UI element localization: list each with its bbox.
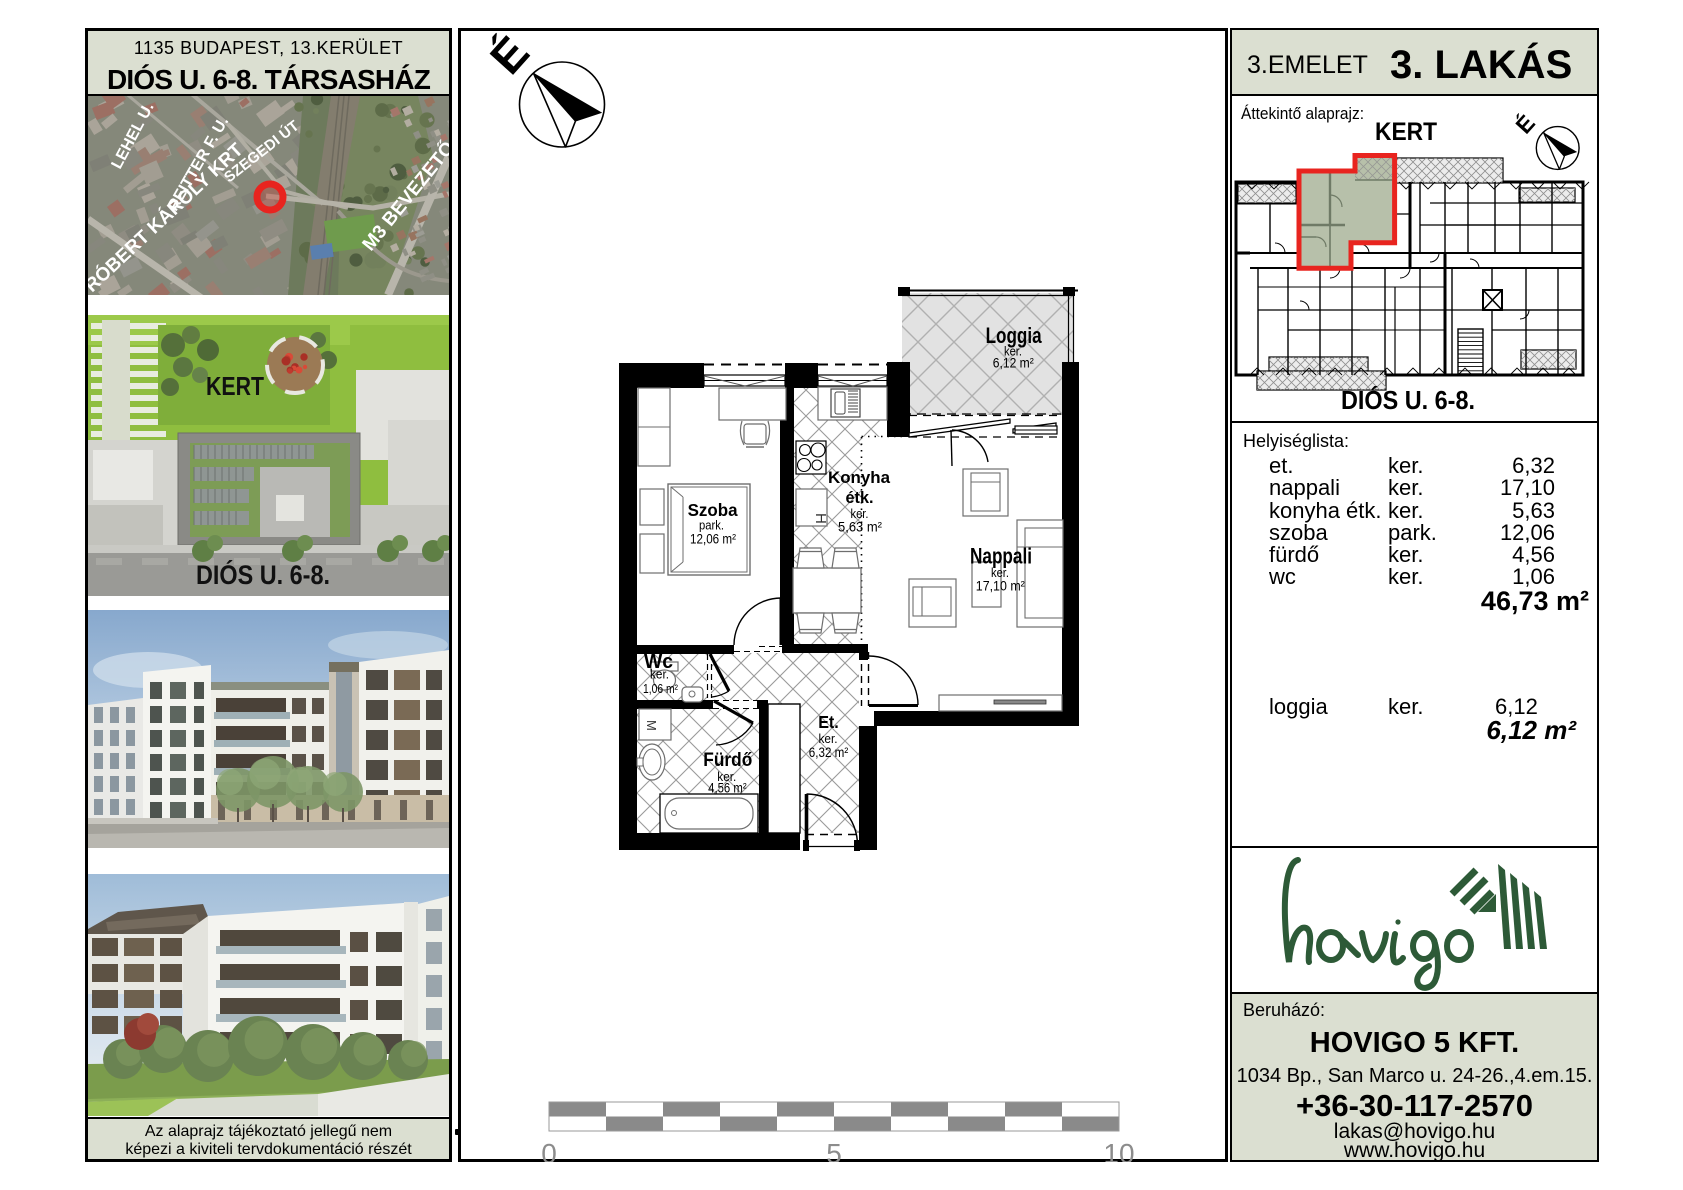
svg-text:6,12 m²: 6,12 m² xyxy=(993,356,1034,371)
svg-text:É: É xyxy=(1510,109,1540,138)
svg-text:ker.: ker. xyxy=(650,667,669,681)
svg-text:étk.: étk. xyxy=(846,488,874,507)
svg-text:Et.: Et. xyxy=(818,712,839,732)
svg-text:KERT: KERT xyxy=(206,371,264,401)
svg-text:Szoba: Szoba xyxy=(688,500,738,520)
svg-text:DIÓS U. 6-8.: DIÓS U. 6-8. xyxy=(196,559,330,590)
svg-text:6,32 m²: 6,32 m² xyxy=(809,745,849,760)
svg-text:H: H xyxy=(812,513,829,524)
svg-text:Nappali: Nappali xyxy=(970,544,1032,569)
svg-text:DIÓS U. 6-8.: DIÓS U. 6-8. xyxy=(1341,385,1475,415)
svg-text:5: 5 xyxy=(826,1138,842,1162)
svg-text:0: 0 xyxy=(541,1138,557,1162)
svg-text:1,06 m²: 1,06 m² xyxy=(643,682,678,696)
svg-text:Áttekintő alaprajz:: Áttekintő alaprajz: xyxy=(1241,104,1364,123)
svg-text:5,63 m²: 5,63 m² xyxy=(838,520,882,535)
svg-text:ker.: ker. xyxy=(819,732,838,746)
svg-text:10: 10 xyxy=(1103,1138,1134,1162)
svg-text:KERT: KERT xyxy=(1375,118,1437,146)
svg-text:Konyha: Konyha xyxy=(828,468,891,487)
svg-text:park.: park. xyxy=(699,519,724,533)
svg-text:17,10 m²: 17,10 m² xyxy=(976,579,1025,594)
svg-text:Fürdő: Fürdő xyxy=(703,749,752,771)
svg-text:M: M xyxy=(644,720,659,731)
svg-text:12,06 m²: 12,06 m² xyxy=(690,532,736,547)
svg-text:4,56 m²: 4,56 m² xyxy=(708,781,747,796)
